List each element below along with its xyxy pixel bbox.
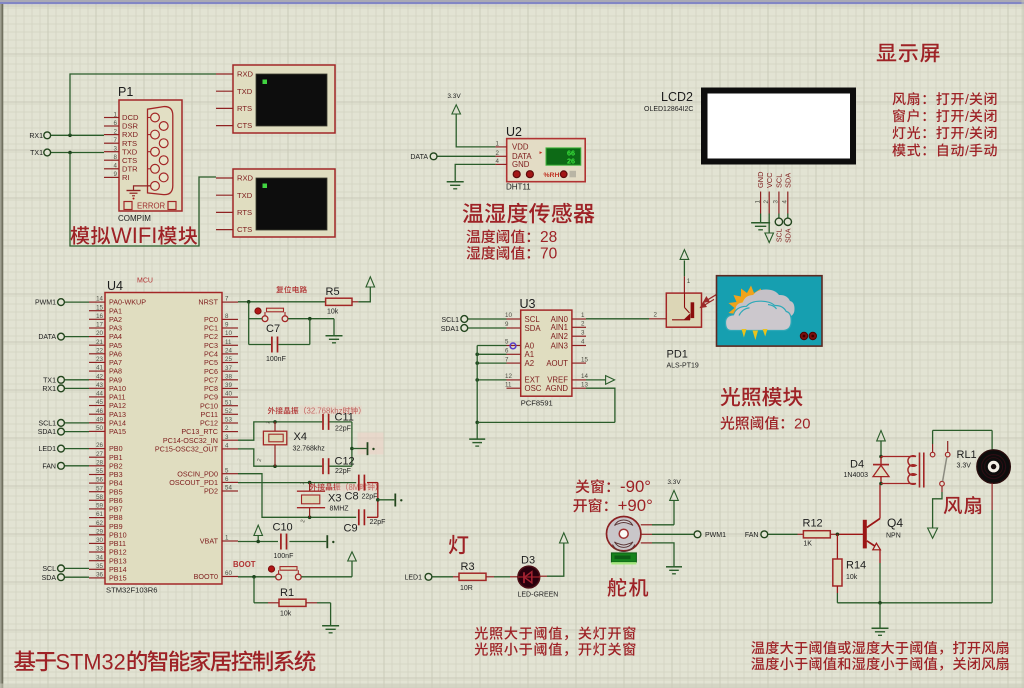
svg-text:27: 27 [96, 451, 103, 458]
svg-text:8: 8 [114, 154, 118, 161]
svg-text:NRST: NRST [198, 298, 218, 307]
svg-text:U4: U4 [107, 279, 123, 293]
svg-text:OSC: OSC [525, 384, 542, 393]
svg-text:1: 1 [581, 312, 585, 319]
svg-text:14: 14 [581, 373, 588, 380]
svg-text:26: 26 [567, 157, 575, 166]
svg-text:PB15: PB15 [109, 574, 127, 583]
svg-text:100nF: 100nF [274, 553, 294, 560]
svg-text:43: 43 [96, 382, 103, 389]
svg-text:22pF: 22pF [335, 468, 351, 475]
svg-text:17: 17 [96, 322, 103, 329]
svg-text:52: 52 [225, 408, 232, 415]
svg-text:PC14-OSC32_IN: PC14-OSC32_IN [163, 436, 218, 445]
svg-text:A1: A1 [525, 350, 535, 359]
svg-text:C8: C8 [345, 491, 359, 503]
svg-text:2: 2 [581, 321, 585, 328]
svg-text:60: 60 [225, 570, 232, 577]
svg-text:5: 5 [505, 339, 509, 346]
svg-text:15: 15 [581, 356, 588, 363]
svg-text:BOOT0: BOOT0 [194, 572, 218, 581]
svg-text:PB12: PB12 [109, 548, 127, 557]
svg-text:PWM1: PWM1 [705, 532, 726, 539]
svg-text:23: 23 [96, 356, 103, 363]
svg-text:10R: 10R [460, 585, 473, 592]
svg-text:PD2: PD2 [204, 487, 218, 496]
svg-text:ERROR: ERROR [137, 202, 166, 211]
svg-text:SDA1: SDA1 [38, 429, 56, 436]
svg-text:C7: C7 [266, 323, 280, 335]
svg-text:COMPIM: COMPIM [118, 214, 151, 223]
svg-text:SDA: SDA [525, 324, 542, 333]
svg-text:56: 56 [96, 477, 103, 484]
svg-text:LCD2: LCD2 [661, 90, 693, 104]
svg-text:D4: D4 [850, 459, 864, 471]
svg-text:TX1: TX1 [30, 150, 43, 157]
svg-text:25: 25 [225, 356, 232, 363]
svg-text:/: / [965, 142, 969, 158]
svg-text:10k: 10k [327, 309, 339, 316]
svg-text:/: / [965, 91, 969, 107]
svg-text:U3: U3 [520, 297, 536, 311]
svg-text:3: 3 [581, 329, 585, 336]
svg-text:ALS-PT19: ALS-PT19 [667, 363, 699, 370]
svg-text:/: / [965, 108, 969, 124]
svg-text:21: 21 [96, 339, 103, 346]
svg-text:4: 4 [496, 158, 500, 165]
svg-text:R3: R3 [461, 561, 475, 573]
svg-text:11: 11 [225, 339, 232, 346]
svg-text:57: 57 [96, 485, 103, 492]
svg-text:6: 6 [505, 348, 509, 355]
svg-text:46: 46 [96, 408, 103, 415]
svg-text:LED1: LED1 [38, 446, 56, 453]
svg-text:9: 9 [114, 171, 118, 178]
svg-text:PA15: PA15 [109, 427, 126, 436]
svg-text:22pF: 22pF [362, 494, 378, 501]
svg-text:WIFI: WIFI [111, 223, 157, 248]
svg-text:2: 2 [496, 150, 500, 157]
svg-text:10: 10 [225, 330, 232, 337]
svg-text:X4: X4 [294, 431, 307, 443]
svg-text:20: 20 [794, 417, 811, 433]
svg-text:A0: A0 [525, 341, 535, 350]
svg-text:51: 51 [225, 399, 232, 406]
svg-text:A2: A2 [525, 359, 535, 368]
svg-text:D3: D3 [521, 555, 535, 567]
svg-text:/: / [965, 125, 969, 141]
svg-text:R12: R12 [803, 518, 823, 530]
svg-text:VCC: VCC [765, 172, 774, 188]
svg-text:STM32F103R6: STM32F103R6 [106, 586, 158, 595]
svg-text:CTS: CTS [237, 225, 252, 234]
svg-text:SCL: SCL [525, 315, 541, 324]
svg-text:22pF: 22pF [370, 519, 386, 526]
svg-text:PC5: PC5 [204, 358, 218, 367]
svg-text:AIN2: AIN2 [551, 332, 568, 341]
svg-text:13: 13 [581, 381, 588, 388]
svg-text:34: 34 [96, 554, 103, 561]
svg-text:R5: R5 [326, 286, 340, 298]
svg-text:SDA: SDA [786, 228, 793, 243]
svg-text:GND: GND [512, 160, 530, 169]
svg-text:10k: 10k [846, 574, 858, 581]
svg-text:3: 3 [114, 146, 118, 153]
svg-text:R14: R14 [846, 560, 866, 572]
svg-text:RXD: RXD [237, 70, 254, 79]
svg-text:1: 1 [496, 140, 500, 147]
svg-text:C10: C10 [273, 522, 293, 534]
svg-text:VBAT: VBAT [200, 537, 219, 546]
svg-text:RI: RI [122, 173, 130, 182]
svg-text:MCU: MCU [137, 278, 153, 285]
svg-text:1: 1 [754, 200, 761, 204]
svg-text:53: 53 [225, 417, 232, 424]
svg-text:16: 16 [96, 313, 103, 320]
svg-text:22: 22 [96, 347, 103, 354]
svg-text:6: 6 [114, 120, 118, 127]
svg-text:40: 40 [225, 391, 232, 398]
svg-text:70: 70 [540, 246, 558, 263]
svg-text:PWM1: PWM1 [35, 300, 56, 307]
svg-text:AOUT: AOUT [546, 359, 568, 368]
svg-text:33: 33 [96, 546, 103, 553]
svg-text:10: 10 [505, 312, 512, 319]
svg-text:U2: U2 [506, 125, 522, 139]
svg-text:PC2: PC2 [204, 332, 218, 341]
svg-text:-90°: -90° [620, 477, 651, 496]
svg-text:2: 2 [114, 128, 118, 135]
svg-text:38: 38 [225, 373, 232, 380]
svg-text:8MHZ: 8MHZ [330, 506, 350, 513]
svg-text:SDA: SDA [783, 173, 792, 188]
svg-text:55: 55 [96, 468, 103, 475]
svg-text:PC8: PC8 [204, 384, 218, 393]
svg-text:Q4: Q4 [887, 516, 903, 530]
svg-text:P1: P1 [118, 85, 133, 99]
svg-text:▸: ▸ [540, 150, 543, 156]
svg-text:CTS: CTS [237, 121, 252, 130]
svg-text:35: 35 [96, 563, 103, 570]
svg-text:29: 29 [96, 528, 103, 535]
svg-text:41: 41 [96, 365, 103, 372]
svg-text:45: 45 [96, 399, 103, 406]
svg-text:PC15-OSC32_OUT: PC15-OSC32_OUT [155, 445, 219, 454]
svg-text:PB7: PB7 [109, 505, 123, 514]
svg-text:4: 4 [782, 200, 789, 204]
svg-text:8: 8 [225, 313, 229, 320]
svg-text:VDD: VDD [512, 143, 529, 152]
svg-text:3: 3 [773, 200, 780, 204]
svg-text:11: 11 [505, 381, 512, 388]
svg-text:SCL: SCL [777, 228, 784, 242]
svg-text:DATA: DATA [38, 334, 56, 341]
svg-text:LED1: LED1 [404, 574, 422, 581]
svg-text:OLED12864I2C: OLED12864I2C [644, 106, 693, 113]
svg-text:PD1: PD1 [667, 349, 688, 361]
svg-text:3.3V: 3.3V [447, 93, 461, 100]
svg-text:TX1: TX1 [43, 377, 56, 384]
svg-text:10k: 10k [280, 611, 292, 618]
svg-text:24: 24 [225, 348, 232, 355]
svg-text:+90°: +90° [618, 496, 653, 515]
svg-text:49: 49 [96, 416, 103, 423]
svg-text:BOOT: BOOT [233, 560, 256, 569]
svg-text:SDA: SDA [42, 575, 57, 582]
svg-text:AIN3: AIN3 [551, 341, 568, 350]
svg-text:PB2: PB2 [109, 461, 123, 470]
svg-text:RX1: RX1 [42, 386, 56, 393]
svg-text:PA12: PA12 [109, 401, 126, 410]
svg-text:LED-GREEN: LED-GREEN [518, 592, 559, 599]
svg-text:30: 30 [96, 537, 103, 544]
svg-text:PA7: PA7 [109, 358, 122, 367]
svg-text:R1: R1 [280, 587, 294, 599]
svg-text:DHT11: DHT11 [506, 183, 531, 192]
svg-text:SCL: SCL [42, 566, 56, 573]
svg-text:28: 28 [540, 229, 557, 246]
svg-text:RX1: RX1 [29, 133, 43, 140]
svg-text:TXD: TXD [237, 191, 253, 200]
svg-text:PA2: PA2 [109, 315, 122, 324]
svg-text:28: 28 [96, 459, 103, 466]
svg-text:C9: C9 [344, 523, 358, 535]
svg-text:SCL1: SCL1 [38, 421, 56, 428]
svg-text:STM32: STM32 [56, 650, 126, 675]
svg-text:3.3V: 3.3V [957, 463, 972, 470]
svg-text:5: 5 [225, 467, 229, 474]
svg-text:32.768khz: 32.768khz [293, 446, 326, 453]
svg-text:4: 4 [225, 443, 229, 450]
svg-text:36: 36 [96, 572, 103, 579]
svg-text:RTS: RTS [237, 104, 252, 113]
svg-text:2: 2 [654, 312, 658, 319]
svg-text:FAN: FAN [745, 532, 759, 539]
svg-text:RXD: RXD [237, 174, 254, 183]
svg-text:61: 61 [96, 511, 103, 518]
svg-text:1K: 1K [803, 541, 812, 548]
svg-text:37: 37 [225, 365, 232, 372]
svg-text:15: 15 [96, 304, 103, 311]
svg-text:100nF: 100nF [266, 356, 286, 363]
svg-text:12: 12 [505, 373, 512, 380]
svg-text:42: 42 [96, 373, 103, 380]
svg-text:22pF: 22pF [335, 426, 351, 433]
svg-text:1N4003: 1N4003 [844, 472, 869, 479]
svg-text:FAN: FAN [42, 463, 56, 470]
svg-text:SDA1: SDA1 [441, 326, 459, 333]
svg-text:39: 39 [225, 382, 232, 389]
svg-text:14: 14 [96, 296, 103, 303]
svg-text:3: 3 [225, 434, 229, 441]
svg-text:1: 1 [225, 535, 229, 542]
svg-text:4: 4 [581, 339, 585, 346]
svg-text:44: 44 [96, 391, 103, 398]
svg-text:1: 1 [114, 111, 118, 118]
svg-text:7: 7 [114, 137, 118, 144]
svg-text:NPN: NPN [886, 533, 901, 540]
svg-text:DATA: DATA [410, 154, 428, 161]
svg-text:6: 6 [225, 476, 229, 483]
svg-text:SCL: SCL [775, 174, 784, 188]
svg-text:9: 9 [505, 321, 509, 328]
svg-text:PCF8591: PCF8591 [521, 399, 553, 408]
svg-text:54: 54 [225, 485, 232, 492]
svg-text:50: 50 [96, 425, 103, 432]
svg-text:62: 62 [96, 520, 103, 527]
svg-text:1: 1 [687, 278, 691, 285]
svg-text:3.3V: 3.3V [667, 479, 681, 486]
svg-text:59: 59 [96, 503, 103, 510]
svg-text:TXD: TXD [237, 87, 253, 96]
svg-text:58: 58 [96, 494, 103, 501]
svg-text:OSCIN_PD0: OSCIN_PD0 [177, 469, 218, 478]
svg-text:PC11: PC11 [201, 410, 218, 419]
svg-text:20: 20 [96, 330, 103, 337]
svg-text:2: 2 [763, 200, 770, 204]
svg-text:2: 2 [225, 425, 229, 432]
svg-text:7: 7 [225, 296, 229, 303]
svg-text:26: 26 [96, 442, 103, 449]
svg-text:AIN1: AIN1 [551, 323, 568, 332]
svg-text:%RH: %RH [544, 172, 560, 179]
svg-text:X3: X3 [328, 493, 341, 505]
svg-text:9: 9 [225, 322, 229, 329]
svg-text:RTS: RTS [237, 208, 252, 217]
svg-text:RL1: RL1 [957, 449, 977, 461]
svg-text:4: 4 [114, 163, 118, 170]
svg-text:SCL1: SCL1 [441, 317, 459, 324]
svg-text:AGND: AGND [545, 384, 568, 393]
svg-text:7: 7 [505, 356, 509, 363]
